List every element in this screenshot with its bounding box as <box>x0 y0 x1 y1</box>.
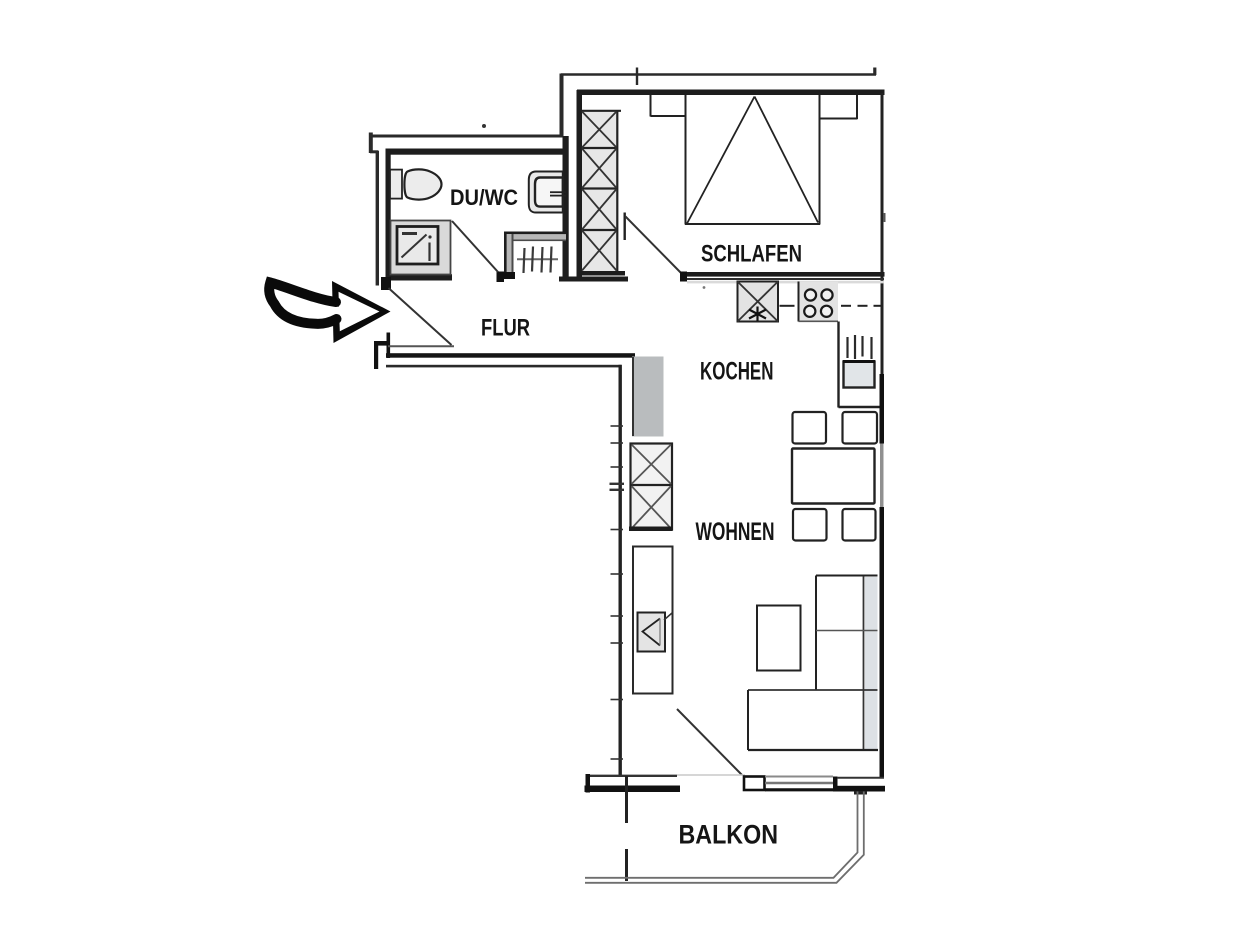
svg-text:SCHLAFEN: SCHLAFEN <box>701 241 802 268</box>
svg-text:WOHNEN: WOHNEN <box>696 518 775 546</box>
svg-text:KOCHEN: KOCHEN <box>700 358 774 386</box>
svg-text:BALKON: BALKON <box>679 820 779 850</box>
svg-text:FLUR: FLUR <box>481 315 530 342</box>
svg-text:DU/WC: DU/WC <box>450 185 518 210</box>
